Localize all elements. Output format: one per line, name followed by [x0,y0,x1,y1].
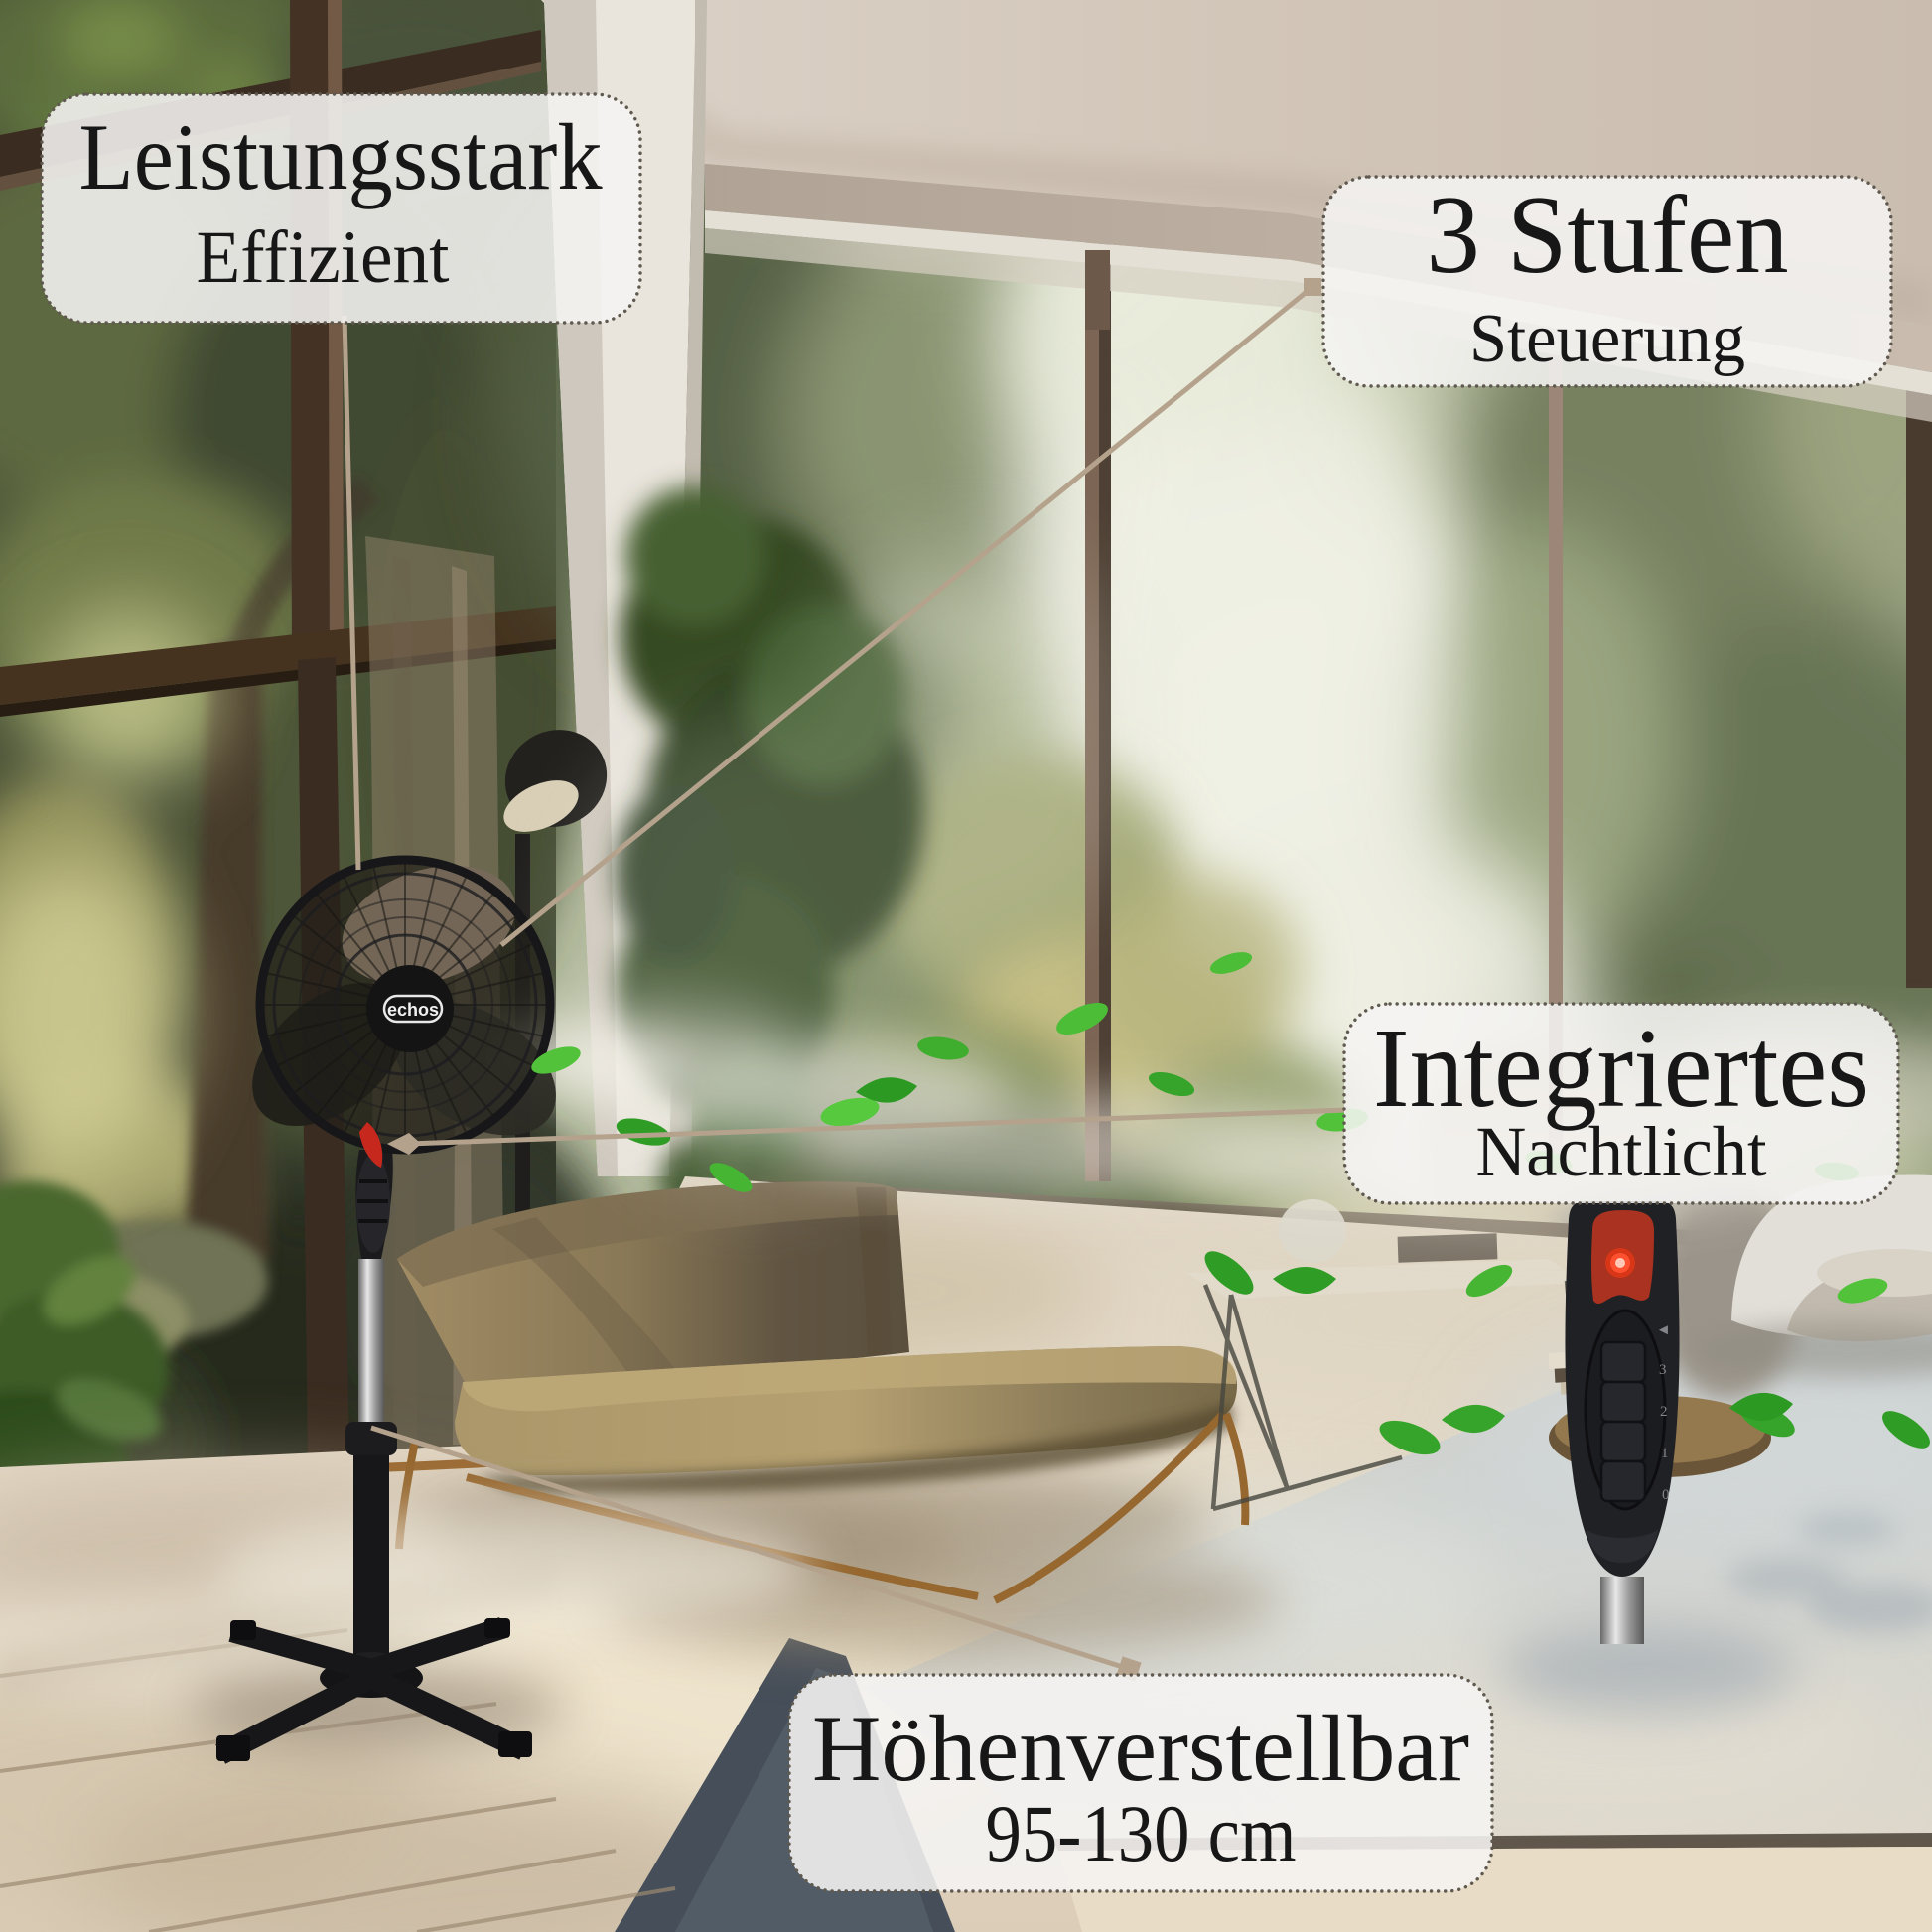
svg-text:Effizient: Effizient [197,216,450,299]
svg-text:3: 3 [1659,1362,1667,1378]
svg-text:echos: echos [387,1000,439,1020]
svg-text:Leistungsstark: Leistungsstark [79,104,603,209]
svg-text:◄: ◄ [1656,1322,1671,1338]
svg-text:3 Stufen: 3 Stufen [1427,174,1789,297]
svg-text:Nachtlicht: Nachtlicht [1476,1112,1767,1191]
svg-text:0: 0 [1662,1487,1670,1503]
svg-text:95-130 cm: 95-130 cm [986,1788,1297,1878]
svg-text:Höhenverstellbar: Höhenverstellbar [812,1696,1469,1801]
svg-text:1: 1 [1661,1446,1669,1461]
svg-text:2: 2 [1660,1404,1668,1420]
svg-text:Steuerung: Steuerung [1469,301,1745,377]
